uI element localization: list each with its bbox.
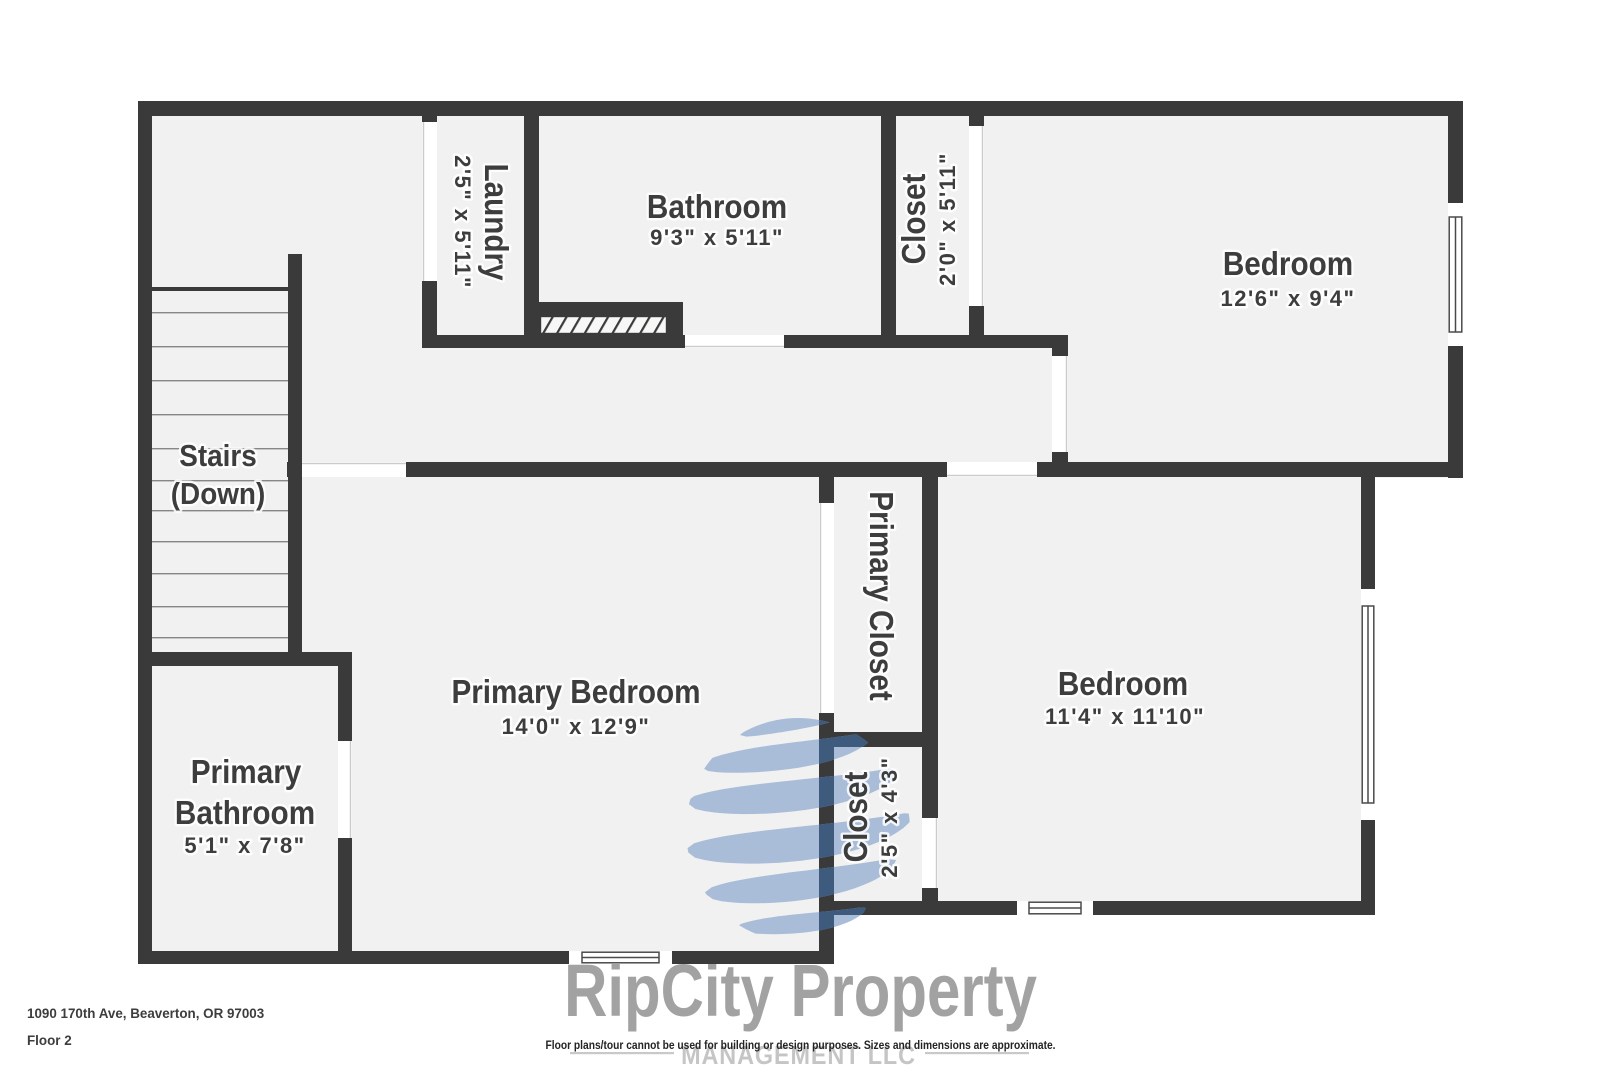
svg-text:Primary Closet: Primary Closet	[863, 491, 900, 701]
svg-text:Closet: Closet	[838, 771, 875, 862]
svg-text:2'0" x 5'11": 2'0" x 5'11"	[935, 152, 960, 286]
svg-text:Floor plans/tour cannot be use: Floor plans/tour cannot be used for buil…	[545, 1039, 1055, 1052]
svg-text:Bathroom: Bathroom	[175, 794, 315, 831]
svg-text:Floor 2: Floor 2	[27, 1033, 72, 1048]
svg-text:Primary Bedroom: Primary Bedroom	[451, 673, 700, 710]
svg-text:(Down): (Down)	[171, 477, 266, 512]
svg-text:Primary: Primary	[191, 753, 302, 790]
svg-text:2'5" x 4'3": 2'5" x 4'3"	[877, 756, 902, 877]
svg-text:5'1" x 7'8": 5'1" x 7'8"	[184, 833, 305, 858]
svg-text:11'4" x 11'10": 11'4" x 11'10"	[1045, 704, 1205, 729]
svg-text:9'3" x 5'11": 9'3" x 5'11"	[650, 225, 784, 250]
svg-text:Bedroom: Bedroom	[1058, 665, 1188, 702]
svg-text:Stairs: Stairs	[179, 439, 257, 474]
svg-text:14'0" x 12'9": 14'0" x 12'9"	[502, 714, 651, 739]
svg-text:Laundry: Laundry	[478, 163, 515, 281]
svg-text:12'6" x 9'4": 12'6" x 9'4"	[1221, 286, 1356, 311]
svg-text:2'5" x 5'11": 2'5" x 5'11"	[450, 155, 475, 289]
svg-text:Bedroom: Bedroom	[1223, 245, 1353, 282]
svg-text:1090 170th Ave, Beaverton, OR: 1090 170th Ave, Beaverton, OR 97003	[27, 1006, 264, 1021]
svg-text:Closet: Closet	[896, 173, 933, 264]
svg-text:Bathroom: Bathroom	[647, 188, 787, 225]
